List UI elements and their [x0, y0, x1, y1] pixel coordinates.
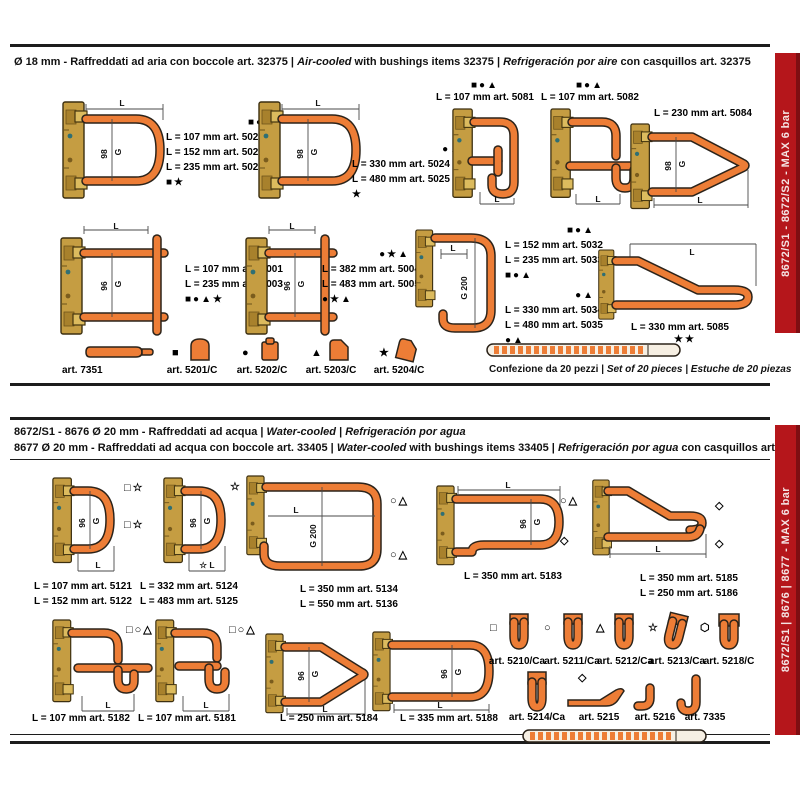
circle-symbol: ● — [242, 347, 251, 359]
labels-5185: L = 350 mm art. 5185 L = 250 mm art. 518… — [640, 572, 738, 602]
svg-text:G: G — [309, 148, 319, 155]
svg-text:G: G — [310, 670, 320, 677]
compat-symbols: ●▲ — [505, 289, 597, 304]
header-italian: Ø 18 mm - Raffreddati ad aria con boccol… — [14, 56, 297, 68]
art-label: art. 5204/C — [371, 365, 427, 377]
compat-symbols: ○△ — [560, 495, 579, 507]
art-label: L = 480 mm art. 5025 — [352, 173, 464, 188]
art-label: L = 480 mm art. 5035 — [505, 319, 597, 334]
svg-text:G: G — [91, 517, 101, 524]
panel-bottom-header-1: 8672/S1 - 8676 Ø 20 mm - Raffreddati ad … — [14, 426, 466, 438]
compat-symbols: ■●▲ — [505, 224, 597, 239]
svg-text:98: 98 — [99, 149, 109, 159]
square-symbol: ■ — [172, 347, 181, 359]
electrode-icon — [662, 612, 688, 652]
bent-electrode-icon — [566, 686, 638, 714]
electrode-icon — [524, 670, 550, 714]
art-label: L = 335 mm art. 5188 — [400, 712, 498, 727]
hexagon-symbol: ⬡ — [700, 622, 712, 634]
diamond-symbol: ◇ — [578, 672, 588, 684]
art-label: art. 7335 — [680, 712, 730, 724]
svg-text:L: L — [689, 247, 694, 257]
compat-symbols: ☆ — [230, 481, 242, 493]
compat-symbols: ★ — [352, 188, 464, 203]
panel-top-header: Ø 18 mm - Raffreddati ad aria con boccol… — [14, 56, 751, 68]
arm-drawing-5081: L — [452, 106, 532, 208]
divider — [10, 383, 770, 386]
arm-drawing-5001: L 96 G — [60, 222, 185, 340]
labels-5134: L = 350 mm art. 5134 L = 550 mm art. 513… — [300, 583, 398, 613]
art-label: art. 5202/C — [234, 365, 290, 377]
compat-symbols: ●▲ — [352, 143, 464, 158]
svg-text:L: L — [105, 700, 110, 710]
cap-icon — [188, 336, 212, 362]
art-label: L = 107 mm art. 5081 — [425, 92, 545, 104]
svg-text:L: L — [119, 98, 124, 108]
compat-symbols: ◇ — [715, 500, 725, 512]
art-label: L = 350 mm art. 5185 — [640, 572, 738, 587]
svg-text:L: L — [113, 221, 118, 231]
svg-text:L: L — [203, 700, 208, 710]
art-label: L = 332 mm art. 5124 — [140, 580, 238, 595]
arm-drawing-5183: L 96 G — [436, 476, 566, 571]
pack-note: Confezione da 20 pezzi | Set of 20 piece… — [489, 364, 791, 375]
art-label: art. 5203/C — [303, 365, 359, 377]
triangle-symbol: △ — [596, 622, 606, 634]
art-label: L = 350 mm art. 5134 — [300, 583, 398, 598]
svg-text:96: 96 — [518, 519, 528, 529]
svg-text:L: L — [450, 243, 455, 253]
star-symbol: ★ — [379, 347, 391, 359]
star-symbol: ☆ — [648, 622, 660, 634]
divider — [10, 459, 770, 460]
electrode-icon — [716, 612, 742, 652]
hook-electrode-icon — [676, 676, 702, 716]
svg-text:L: L — [293, 505, 298, 515]
svg-text:L: L — [289, 221, 294, 231]
header-english: with bushings items 32375 | — [351, 56, 503, 68]
arm-drawing-5021: L 98 G — [62, 94, 172, 206]
art-label: L = 235 mm art. 5033 — [505, 254, 597, 269]
svg-text:L: L — [505, 480, 510, 490]
compat-symbols: ◇ — [715, 538, 725, 550]
art-label: L = 483 mm art. 5005 — [322, 278, 412, 293]
arm-drawing-5084: 98 G L — [630, 118, 760, 213]
electrode-icon — [611, 612, 637, 652]
arm-drawing-5121: 96 G L — [52, 474, 132, 576]
svg-text:L: L — [655, 544, 660, 554]
art-label: L = 152 mm art. 5122 — [34, 595, 132, 610]
art-label: art. 5214/Ca — [506, 712, 568, 724]
art-label: L = 382 mm art. 5004 — [322, 263, 412, 278]
divider — [10, 417, 770, 420]
svg-text:G: G — [532, 518, 542, 525]
svg-text:G 200: G 200 — [459, 276, 469, 299]
elbow-electrode-icon — [632, 684, 658, 714]
compat-symbols: □○△ — [229, 624, 257, 636]
svg-text:G: G — [296, 280, 306, 287]
header-english-italic: Air-cooled — [297, 56, 351, 68]
svg-text:96: 96 — [99, 281, 109, 291]
model-tab-bottom-label: 8672/S1 | 8676 | 8677 - MAX 6 bar — [780, 487, 792, 672]
art-label: L = 550 mm art. 5136 — [300, 598, 398, 613]
electrode-rod-icon — [84, 344, 156, 360]
art-label: L = 250 mm art. 5184 — [280, 712, 378, 727]
compat-symbols: ■●▲ — [505, 269, 597, 284]
labels-5121: L = 107 mm art. 5121 L = 152 mm art. 512… — [34, 580, 132, 610]
art-label: L = 350 mm art. 5183 — [464, 570, 562, 585]
labels-5181: L = 107 mm art. 5181 — [138, 712, 236, 727]
model-tab-bottom: 8672/S1 | 8676 | 8677 - MAX 6 bar — [775, 425, 800, 735]
art-label: L = 107 mm art. 5121 — [34, 580, 132, 595]
compat-symbols: ●★▲ — [322, 248, 412, 263]
electrode-icon — [506, 612, 532, 652]
art-label: art. 5216 — [630, 712, 680, 724]
divider — [10, 44, 770, 47]
labels-5004: ●★▲ L = 382 mm art. 5004 L = 483 mm art.… — [322, 248, 412, 308]
compat-symbols: ○△ — [390, 495, 409, 507]
art-label: L = 107 mm art. 5082 — [530, 92, 650, 104]
svg-text:L: L — [437, 700, 442, 710]
art-label: L = 107 mm art. 5181 — [138, 712, 236, 727]
svg-text:96: 96 — [439, 669, 449, 679]
model-tab-top-label: 8672/S1 - 8672/S2 - MAX 6 bar — [780, 110, 792, 277]
svg-text:96: 96 — [188, 518, 198, 528]
art-label: art. 5201/C — [164, 365, 220, 377]
compat-symbols: ●★▲ — [322, 293, 412, 308]
svg-text:G: G — [202, 517, 212, 524]
svg-text:L: L — [315, 98, 320, 108]
art-label: L = 330 mm art. 5034 — [505, 304, 597, 319]
header-spanish-italic: Refrigeración por aire — [503, 56, 617, 68]
arm-drawing-5184: 96 G L — [265, 630, 375, 722]
labels-5124: L = 332 mm art. 5124 L = 483 mm art. 512… — [140, 580, 238, 610]
square-symbol: □ — [490, 622, 499, 634]
art-label: art. 5210/Ca — [486, 656, 548, 668]
svg-text:☆ L: ☆ L — [199, 560, 214, 570]
labels-5184: L = 250 mm art. 5184 — [280, 712, 378, 727]
art-label: L = 250 mm art. 5186 — [640, 587, 738, 602]
svg-text:G 200: G 200 — [308, 524, 318, 547]
electrode-pack-icon — [522, 728, 707, 744]
compat-symbols: ■●▲ — [535, 80, 645, 92]
svg-text:98: 98 — [663, 161, 673, 171]
circle-symbol: ○ — [544, 622, 553, 634]
header-spanish: con casquillos art. 32375 — [617, 56, 750, 68]
triangle-symbol: ▲ — [311, 347, 324, 359]
compat-symbols: □☆ — [124, 519, 145, 531]
svg-text:L: L — [595, 194, 600, 204]
labels-5188: L = 335 mm art. 5188 — [400, 712, 498, 727]
arm-drawing-5188: 96 G L — [372, 628, 497, 720]
art-label: art. 5218/C — [698, 656, 760, 668]
labels-5032: ■●▲ L = 152 mm art. 5032 L = 235 mm art.… — [505, 224, 597, 349]
svg-text:96: 96 — [282, 281, 292, 291]
cap-icon — [395, 336, 419, 362]
labels-5024: ●▲ L = 330 mm art. 5024 L = 480 mm art. … — [352, 143, 464, 203]
compat-symbols: □☆ — [124, 482, 145, 494]
arm-drawing-g200: L G 200 — [415, 222, 505, 342]
art-label: L = 330 mm art. 5085 — [615, 322, 745, 334]
labels-5183: L = 350 mm art. 5183 — [464, 570, 562, 585]
svg-text:96: 96 — [77, 518, 87, 528]
cap-icon — [327, 336, 351, 362]
svg-text:L: L — [697, 195, 702, 205]
arm-drawing-5185: L — [592, 474, 712, 569]
compat-symbols: ■●▲ — [430, 80, 540, 92]
svg-text:G: G — [113, 148, 123, 155]
compat-symbols: ○△ — [390, 549, 409, 561]
labels-5182: L = 107 mm art. 5182 — [32, 712, 130, 727]
svg-text:98: 98 — [295, 149, 305, 159]
art-label: art. 7351 — [62, 365, 122, 377]
compat-symbols: ◇ — [560, 535, 570, 547]
cap-icon — [258, 336, 282, 362]
svg-text:96: 96 — [296, 671, 306, 681]
art-label: L = 152 mm art. 5032 — [505, 239, 597, 254]
svg-text:G: G — [453, 668, 463, 675]
arm-drawing-5085: L — [598, 236, 768, 320]
art-label: L = 483 mm art. 5125 — [140, 595, 238, 610]
panel-bottom-header-2: 8677 Ø 20 mm - Raffreddati ad acqua con … — [14, 442, 800, 454]
art-label: L = 330 mm art. 5024 — [352, 158, 464, 173]
model-tab-top: 8672/S1 - 8672/S2 - MAX 6 bar — [775, 53, 800, 333]
art-label: L = 107 mm art. 5182 — [32, 712, 130, 727]
svg-text:G: G — [677, 160, 687, 167]
svg-text:L: L — [95, 560, 100, 570]
svg-text:L: L — [494, 194, 499, 204]
catalog-page: Ø 18 mm - Raffreddati ad aria con boccol… — [0, 0, 800, 800]
svg-text:G: G — [113, 280, 123, 287]
arm-drawing-5134: L G 200 — [246, 470, 386, 578]
electrode-icon — [560, 612, 586, 652]
electrode-pack-icon — [486, 342, 681, 358]
art-label: art. 5215 — [574, 712, 624, 724]
compat-symbols: □○△ — [126, 624, 154, 636]
